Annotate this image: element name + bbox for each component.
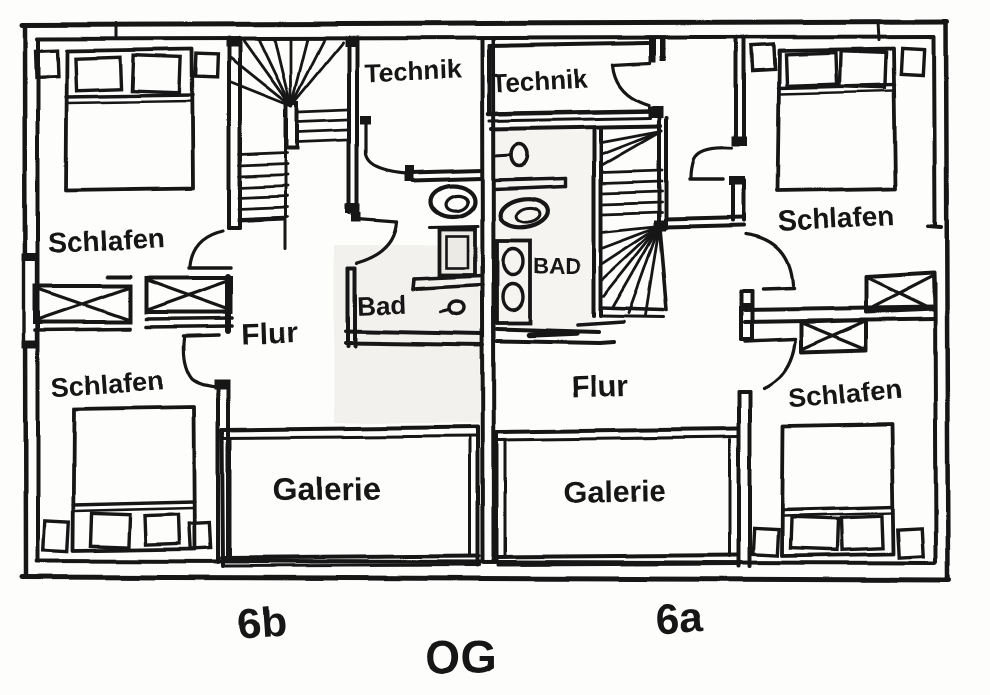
svg-text:Galerie: Galerie (272, 470, 381, 508)
svg-text:Flur: Flur (571, 370, 629, 405)
svg-text:Technik: Technik (364, 54, 462, 87)
svg-text:BAD: BAD (533, 254, 581, 279)
svg-text:Flur: Flur (241, 317, 299, 352)
svg-text:Bad: Bad (357, 289, 407, 321)
svg-text:Galerie: Galerie (564, 475, 666, 510)
svg-text:6a: 6a (654, 593, 705, 643)
svg-text:Schlafen: Schlafen (777, 200, 895, 237)
svg-text:Technik: Technik (491, 63, 589, 98)
svg-text:6b: 6b (236, 597, 288, 647)
svg-text:Schlafen: Schlafen (47, 222, 165, 259)
svg-text:OG: OG (425, 631, 497, 683)
